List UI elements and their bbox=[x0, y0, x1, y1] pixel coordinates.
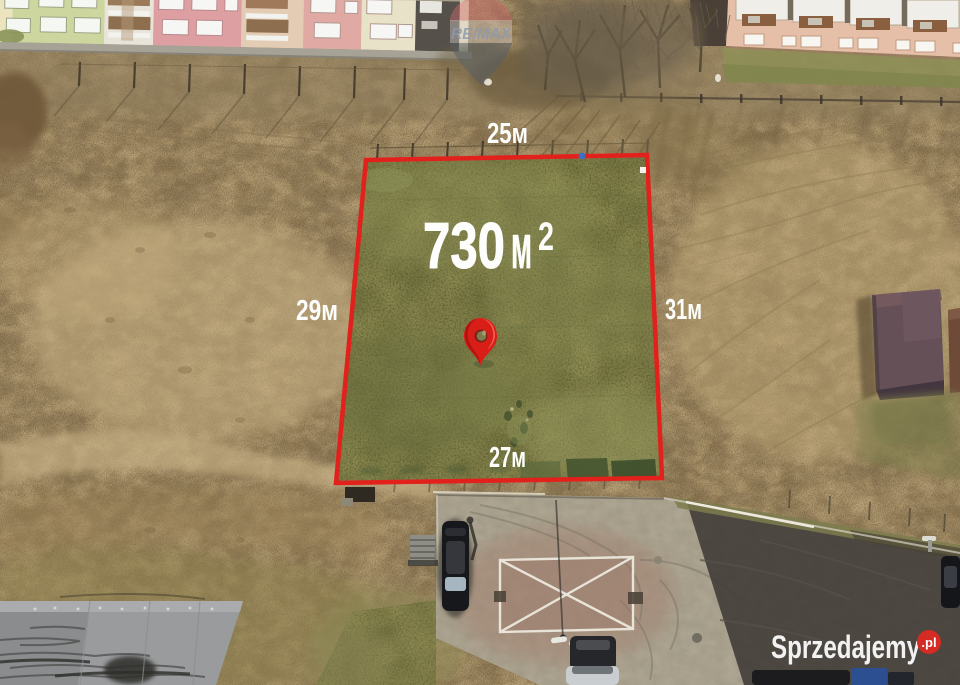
svg-text:25м: 25м bbox=[487, 118, 528, 150]
svg-text:2: 2 bbox=[538, 215, 554, 259]
svg-text:м: м bbox=[511, 213, 532, 282]
svg-text:.pl: .pl bbox=[921, 635, 936, 650]
svg-text:730: 730 bbox=[423, 209, 505, 282]
svg-text:31м: 31м bbox=[665, 294, 702, 326]
svg-text:RE/MAX: RE/MAX bbox=[451, 26, 512, 43]
svg-text:29м: 29м bbox=[296, 295, 338, 327]
svg-text:Sprzedajemy: Sprzedajemy bbox=[771, 629, 920, 665]
svg-text:27м: 27м bbox=[489, 442, 526, 474]
